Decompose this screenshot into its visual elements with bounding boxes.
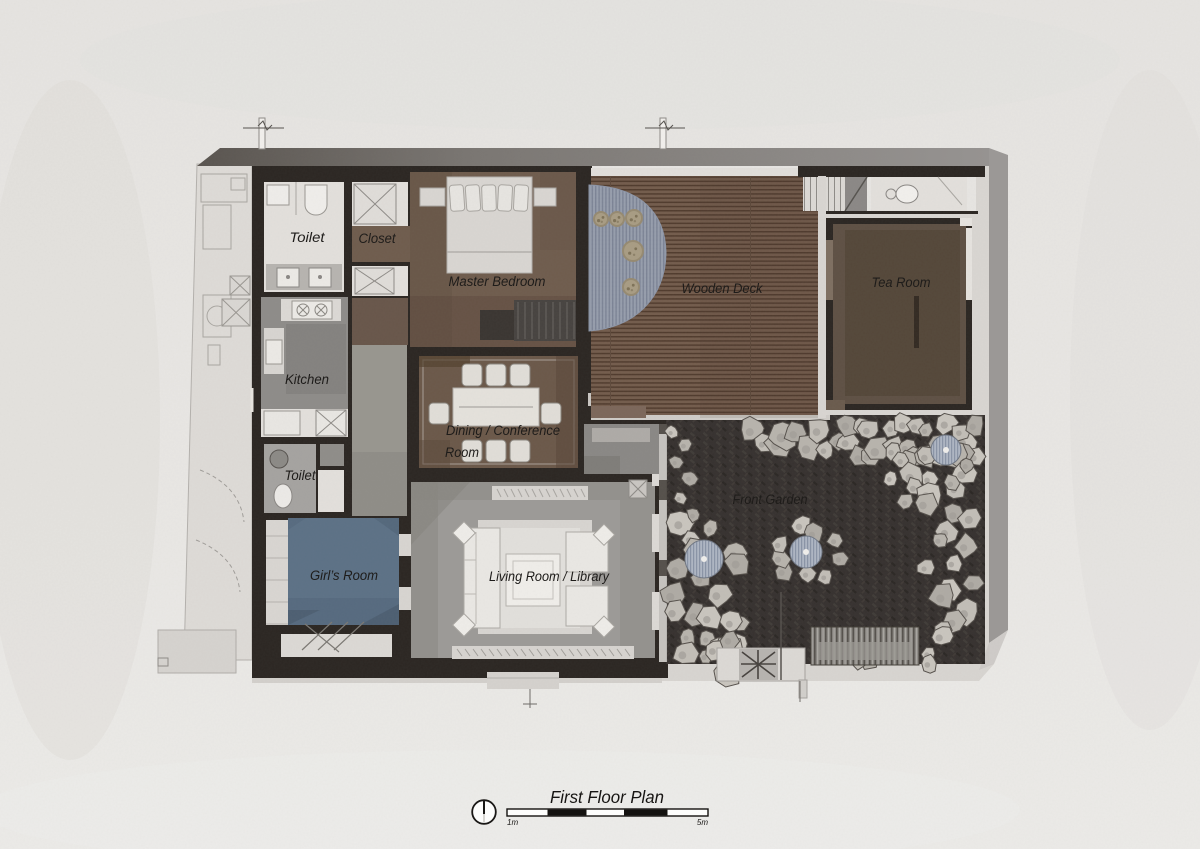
svg-text:1m: 1m: [507, 818, 518, 827]
svg-text:Tea Room: Tea Room: [872, 275, 931, 290]
svg-text:Toilet: Toilet: [290, 230, 326, 245]
svg-text:Master Bedroom: Master Bedroom: [449, 274, 546, 289]
svg-text:Girl’s Room: Girl’s Room: [310, 568, 378, 583]
svg-text:Wooden Deck: Wooden Deck: [682, 281, 764, 296]
svg-text:Front Garden: Front Garden: [733, 492, 808, 507]
svg-text:Room: Room: [445, 445, 479, 460]
svg-text:First Floor Plan: First Floor Plan: [550, 787, 664, 807]
svg-text:5m: 5m: [697, 818, 708, 827]
svg-text:Dining / Conference: Dining / Conference: [446, 423, 560, 438]
svg-text:Toilet: Toilet: [285, 468, 317, 483]
svg-text:Closet: Closet: [359, 231, 397, 246]
svg-text:Kitchen: Kitchen: [285, 372, 329, 387]
svg-text:Living Room / Library: Living Room / Library: [489, 569, 610, 584]
